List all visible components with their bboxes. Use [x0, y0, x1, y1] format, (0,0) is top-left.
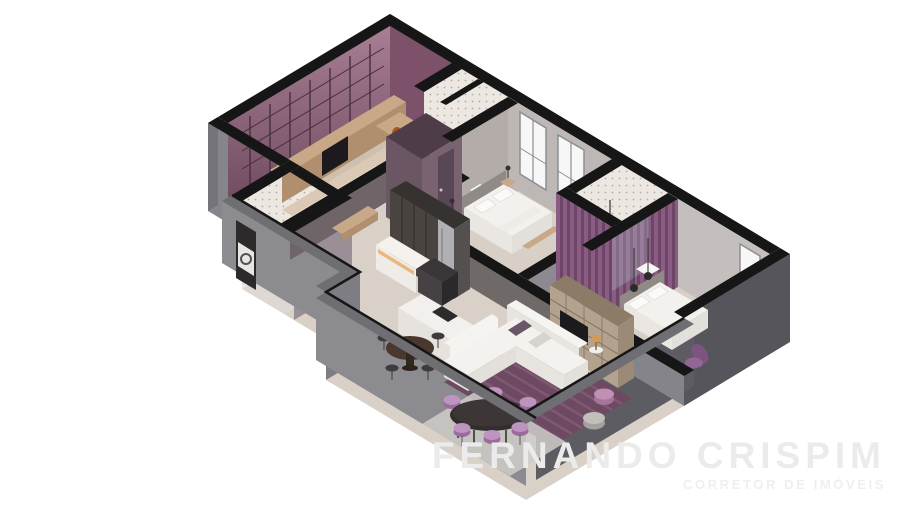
- isometric-apartment: FERNANDO CRISPIM CORRETOR DE IMÓVEIS: [0, 0, 900, 506]
- pouf-pink: [594, 389, 614, 406]
- pendant-bulb: [630, 284, 638, 292]
- pouf-gray: [583, 412, 605, 430]
- office-exterior-wall-cap: [208, 117, 218, 211]
- lamp-shade: [591, 336, 601, 342]
- lamp-shade: [450, 199, 455, 204]
- pendant-bulb: [644, 272, 652, 280]
- table-base: [402, 365, 418, 371]
- washer-niche: [236, 220, 256, 290]
- lamp-shade: [506, 166, 511, 171]
- watermark-subtitle: CORRETOR DE IMÓVEIS: [683, 477, 886, 492]
- watermark-name: FERNANDO CRISPIM: [432, 435, 886, 476]
- floor-plan-render: FERNANDO CRISPIM CORRETOR DE IMÓVEIS: [0, 0, 900, 506]
- wc-door-knob: [440, 189, 443, 192]
